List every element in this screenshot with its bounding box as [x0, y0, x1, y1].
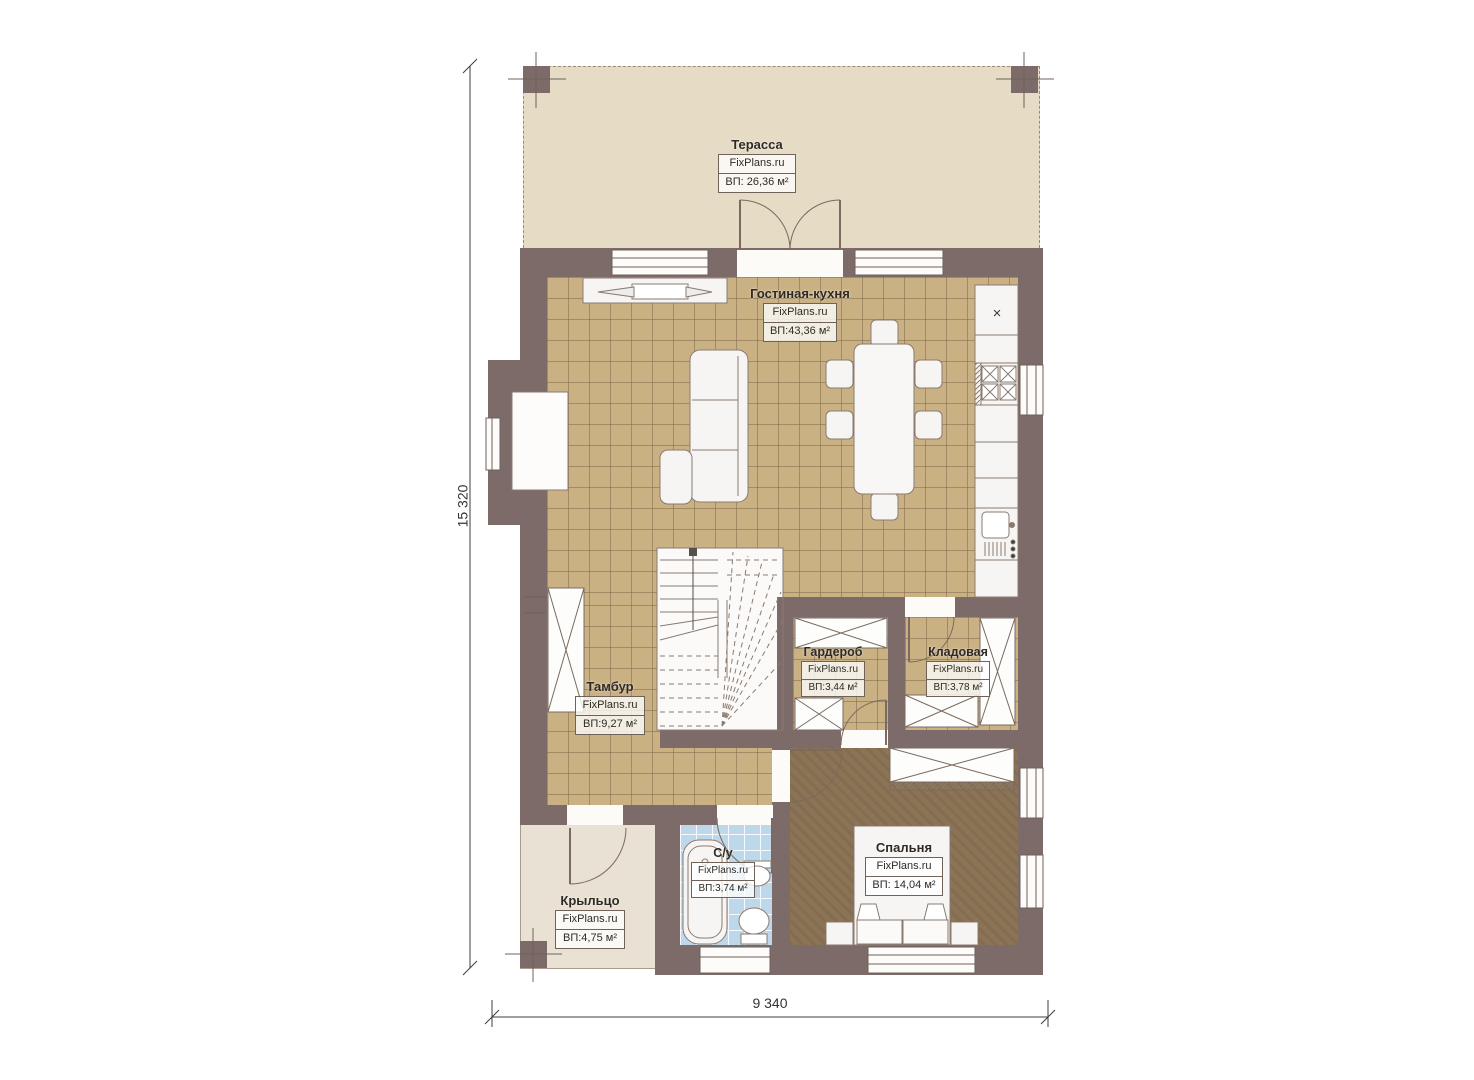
room-area: ВП:9,27 м² [576, 716, 643, 734]
room-area: ВП:4,75 м² [556, 930, 623, 948]
room-name: Терасса [697, 137, 817, 152]
room-label-porch: Крыльцо FixPlans.ruВП:4,75 м² [530, 893, 650, 949]
room-name: Кладовая [900, 645, 1016, 659]
wall-bottom [655, 945, 1043, 975]
room-area: ВП:3,44 м² [802, 680, 864, 697]
room-area: ВП:3,78 м² [927, 680, 989, 697]
brand-watermark: FixPlans.ru [866, 858, 941, 877]
staircase-area [657, 548, 783, 730]
brand-watermark: FixPlans.ru [556, 911, 623, 930]
dimension-width: 9 340 [740, 995, 800, 1011]
brand-watermark: FixPlans.ru [927, 662, 989, 680]
wall-bay [488, 360, 520, 525]
brand-watermark: FixPlans.ru [576, 697, 643, 716]
brand-watermark: FixPlans.ru [692, 863, 754, 881]
terrace-pillar-left [523, 66, 550, 93]
brand-watermark: FixPlans.ru [802, 662, 864, 680]
room-label-terrace: Терасса FixPlans.ruВП: 26,36 м² [697, 137, 817, 193]
brand-watermark: FixPlans.ru [764, 304, 836, 323]
room-label-living-kitchen: Гостиная-кухня FixPlans.ruВП:43,36 м² [740, 286, 860, 342]
room-name: С/у [665, 846, 781, 860]
room-name: Гардероб [775, 645, 891, 659]
room-label-wardrobe: Гардероб FixPlans.ruВП:3,44 м² [775, 645, 891, 697]
floor-plan-canvas: Терасса FixPlans.ruВП: 26,36 м² Гостиная… [0, 0, 1474, 1080]
brand-watermark: FixPlans.ru [719, 155, 794, 174]
room-name: Тамбур [550, 679, 670, 694]
wall-vestibule-bottom [520, 805, 790, 825]
wall-corridor-bedroom-top [660, 730, 1018, 748]
room-area: ВП:43,36 м² [764, 323, 836, 341]
room-label-bedroom: Спальня FixPlans.ruВП: 14,04 м² [844, 840, 964, 896]
room-area: ВП:3,74 м² [692, 881, 754, 898]
room-name: Гостиная-кухня [740, 286, 860, 301]
wall-left [520, 248, 547, 825]
terrace-pillar-right [1011, 66, 1038, 93]
room-name: Спальня [844, 840, 964, 855]
room-label-storage: Кладовая FixPlans.ruВП:3,78 м² [900, 645, 1016, 697]
wall-right [1018, 248, 1043, 975]
room-area: ВП: 14,04 м² [866, 877, 941, 895]
fridge-icon: × [982, 305, 1012, 322]
dimension-height: 15 320 [455, 479, 471, 534]
room-name: Крыльцо [530, 893, 650, 908]
room-area: ВП: 26,36 м² [719, 174, 794, 192]
room-label-bathroom: С/у FixPlans.ruВП:3,74 м² [665, 846, 781, 898]
wall-top [520, 248, 1043, 277]
room-label-vestibule: Тамбур FixPlans.ruВП:9,27 м² [550, 679, 670, 735]
